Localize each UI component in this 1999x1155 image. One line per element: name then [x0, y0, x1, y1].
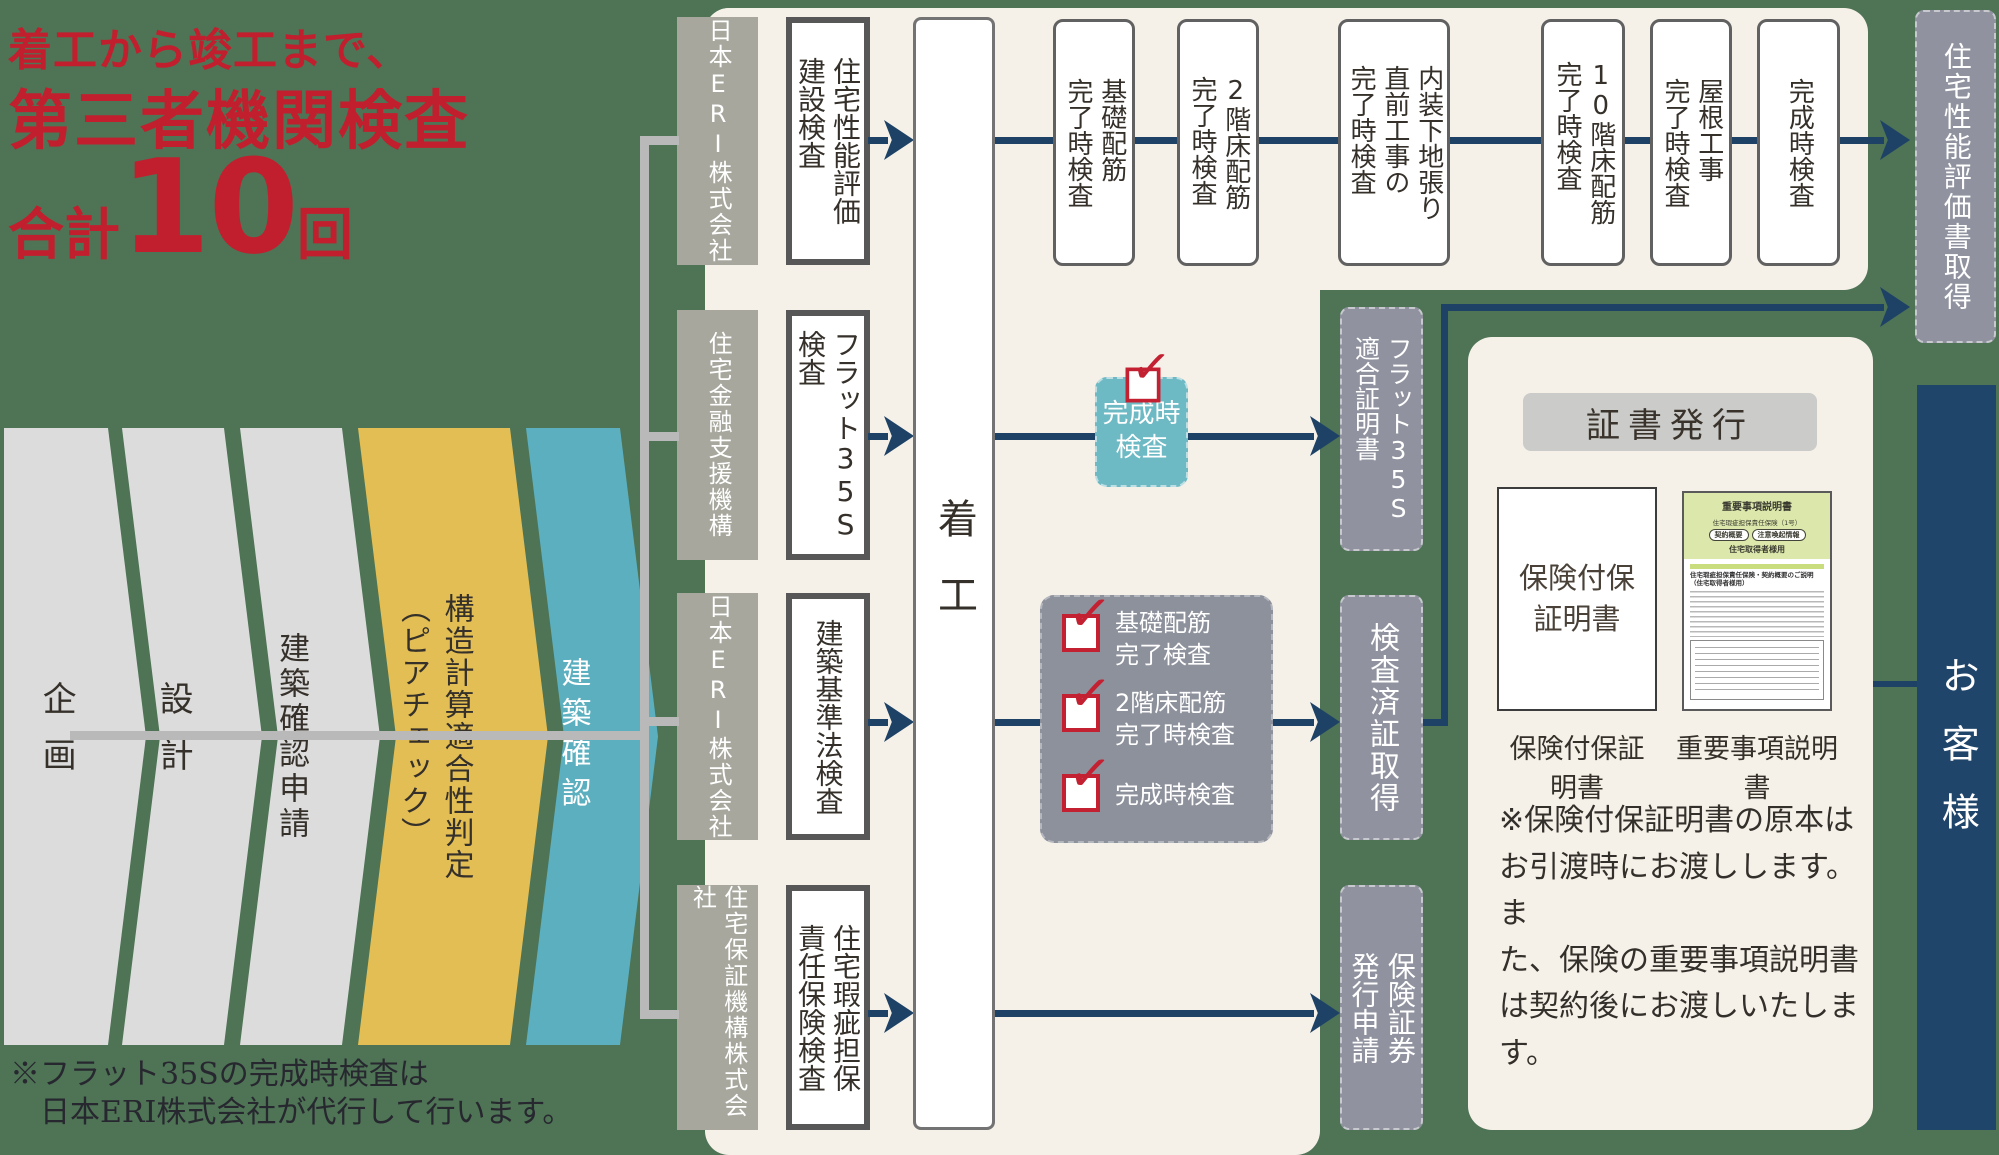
thumbnail-badge-contract: 契約概要	[1709, 529, 1749, 541]
check-icon: ✓	[1065, 586, 1114, 642]
timeline-box-roof-work: 屋根工事 完了時検査	[1650, 19, 1732, 266]
insurance-certificate-document: 保険付保 証明書	[1497, 487, 1657, 711]
flow-line-row2-b	[995, 433, 1105, 440]
connector-branch-lane3	[640, 717, 679, 726]
check-icon: ✓	[1065, 666, 1114, 722]
inspection-label: 住宅性能評価 建設検査	[793, 57, 863, 225]
inspection-label: フラット35S 検査	[793, 330, 863, 541]
thumbnail-badge-caution: 注意喚起情報	[1752, 529, 1806, 541]
flow-line-row4-b	[995, 1010, 1314, 1017]
customer-label: お客様	[1932, 656, 1981, 860]
checkbox-icon: ✓	[1126, 368, 1161, 403]
outcome-box-insurance-policy-application: 保険証券 発行申請	[1340, 885, 1423, 1130]
checkbox-icon: ✓	[1062, 694, 1100, 732]
flow-arrow	[1880, 287, 1910, 327]
flow-line-certificates-to-customer	[1873, 681, 1917, 687]
total-suffix: 回	[297, 209, 353, 262]
flow-line-up-horizontal-top	[1448, 304, 1884, 311]
agency-label: 日本ERI株式会社	[702, 18, 733, 264]
agency-header-warranty: 住宅保証機構株式会社	[677, 885, 758, 1130]
process-timeline-line	[70, 731, 648, 740]
timeline-box-completion: 完成時検査	[1757, 19, 1840, 266]
outcome-label: 検査済証取得	[1362, 622, 1401, 814]
outcome-box-flat35s-certificate: フラット35S 適合証明書	[1340, 307, 1423, 551]
certificate-panel-header-label: 証書発行	[1586, 398, 1754, 447]
timeline-box-foundation-rebar: 基礎配筋 完了時検査	[1053, 19, 1135, 266]
inspection-label: 住宅瑕疵担保 責任保険検査	[793, 924, 863, 1092]
inspection-label: 建築基準法検査	[811, 619, 846, 815]
thumbnail-audience: 住宅取得者様用	[1687, 544, 1827, 555]
flow-line-up-vertical	[1441, 304, 1448, 726]
thumbnail-body-text-box	[1690, 640, 1824, 700]
flow-line-row4-a	[868, 1010, 888, 1017]
timeline-box-label: 基礎配筋 完了時検査	[1060, 78, 1128, 208]
flow-line-row2-a	[868, 433, 888, 440]
thumbnail-body-text-lines	[1690, 591, 1824, 637]
checklist-item-label: 2階床配筋 完了時検査	[1115, 688, 1235, 751]
connector-branch-lane2	[640, 432, 679, 441]
outcome-label: 住宅性能評価書取得	[1937, 42, 1973, 312]
agency-header-eri-2: 日本ERI株式会社	[677, 593, 758, 840]
thumbnail-title: 重要事項説明書	[1687, 498, 1827, 513]
timeline-box-label: 屋根工事 完了時検査	[1657, 78, 1725, 208]
checkbox-icon: ✓	[1062, 614, 1100, 652]
inspection-box-performance-evaluation: 住宅性能評価 建設検査	[786, 17, 870, 265]
flow-arrow	[1880, 120, 1910, 160]
caption-important-matters: 重要事項説明書	[1667, 727, 1847, 805]
thumbnail-body-heading: 住宅瑕疵担保責任保険・契約概要のご説明（住宅取得者様用）	[1690, 572, 1824, 588]
agency-label: 住宅金融支援機構	[702, 331, 733, 539]
connector-vertical-line	[640, 136, 649, 1019]
certificate-panel-header: 証書発行	[1523, 393, 1817, 451]
timeline-box-10f-floor-rebar: 10階床配筋 完了時検査	[1541, 19, 1625, 266]
flow-line-row1-a	[868, 137, 888, 144]
check-icon: ✓	[1129, 342, 1174, 394]
connector-branch-lane1	[640, 136, 679, 145]
flat35-completion-check-label: 完成時 検査	[1102, 398, 1180, 466]
headline-line1: 着工から竣工まで、	[8, 14, 411, 78]
headline-total: 合計 10 回	[8, 146, 353, 262]
connector-branch-lane4	[640, 1010, 679, 1019]
flow-line-row3-b	[995, 719, 1042, 726]
inspection-box-building-standards: 建築基準法検査	[786, 593, 870, 840]
checklist-item-label: 基礎配筋 完了検査	[1115, 608, 1211, 671]
timeline-box-label: 10階床配筋 完了時検査	[1549, 61, 1617, 225]
thumbnail-header: 重要事項説明書 住宅瑕疵担保責任保険（1号） 契約概要 注意喚起情報 住宅取得者…	[1684, 493, 1830, 559]
thumbnail-subtitle: 住宅瑕疵担保責任保険（1号）	[1687, 517, 1827, 527]
flow-line-row3-c	[1271, 719, 1314, 726]
certificate-panel-note: ※保険付保証明書の原本は お引渡時にお渡しします。ま た、保険の重要事項説明書 …	[1499, 798, 1859, 1077]
outcome-label: フラット35S 適合証明書	[1349, 336, 1414, 523]
footnote: ※フラット35Sの完成時検査は 日本ERI株式会社が代行して行います。	[10, 1056, 572, 1131]
thumbnail-divider	[1690, 564, 1824, 569]
total-number: 10	[120, 152, 297, 263]
checklist-item-label: 完成時検査	[1115, 780, 1235, 812]
checkbox-icon: ✓	[1062, 774, 1100, 812]
timeline-box-label: 2階床配筋 完了時検査	[1184, 76, 1252, 210]
construction-start-column: 着工	[913, 17, 995, 1130]
inspection-box-flat35s: フラット35S 検査	[786, 310, 870, 560]
outcome-box-performance-evaluation-report: 住宅性能評価書取得	[1915, 10, 1996, 343]
agency-header-jhf: 住宅金融支援機構	[677, 310, 758, 560]
agency-label: 日本ERI株式会社	[702, 594, 733, 840]
infographic-canvas: 着工から竣工まで、 第三者機関検査 合計 10 回 企画 設計 建築確認申請 構…	[0, 0, 1999, 1155]
outcome-box-inspection-certificate: 検査済証取得	[1340, 595, 1423, 840]
insurance-certificate-document-title: 保険付保 証明書	[1519, 558, 1635, 639]
inspection-box-defect-insurance: 住宅瑕疵担保 責任保険検査	[786, 885, 870, 1130]
timeline-box-interior-substrate: 内装下地張り 直前工事の 完了時検査	[1338, 19, 1450, 266]
outcome-label: 保険証券 発行申請	[1345, 952, 1418, 1064]
customer-bar: お客様	[1917, 385, 1996, 1130]
agency-label: 住宅保証機構株式会社	[686, 885, 748, 1130]
timeline-box-label: 内装下地張り 直前工事の 完了時検査	[1343, 65, 1444, 221]
important-matters-document-thumbnail: 重要事項説明書 住宅瑕疵担保責任保険（1号） 契約概要 注意喚起情報 住宅取得者…	[1682, 491, 1832, 711]
timeline-box-label: 完成時検査	[1782, 78, 1816, 208]
flow-line-row3-a	[868, 719, 888, 726]
timeline-box-2f-floor-rebar: 2階床配筋 完了時検査	[1177, 19, 1259, 266]
caption-insurance-certificate: 保険付保証明書	[1497, 727, 1657, 805]
check-icon: ✓	[1065, 746, 1114, 802]
total-prefix: 合計	[8, 209, 120, 262]
construction-start-label: 着工	[928, 498, 980, 650]
agency-header-eri-1: 日本ERI株式会社	[677, 17, 758, 265]
flow-line-row2-c	[1186, 433, 1314, 440]
